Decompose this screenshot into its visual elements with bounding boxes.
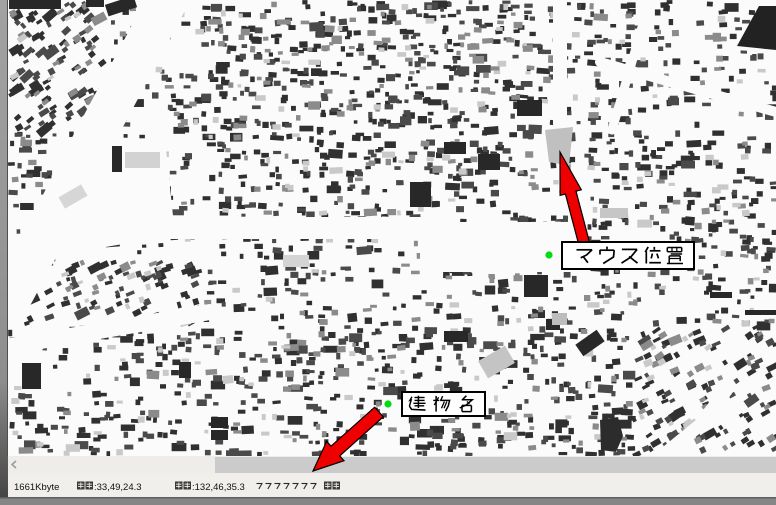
svg-text::132,46,35.3: :132,46,35.3 bbox=[192, 482, 245, 493]
svg-text::33,49,24.3: :33,49,24.3 bbox=[94, 482, 142, 493]
svg-text:1661Kbyte: 1661Kbyte bbox=[14, 482, 59, 493]
